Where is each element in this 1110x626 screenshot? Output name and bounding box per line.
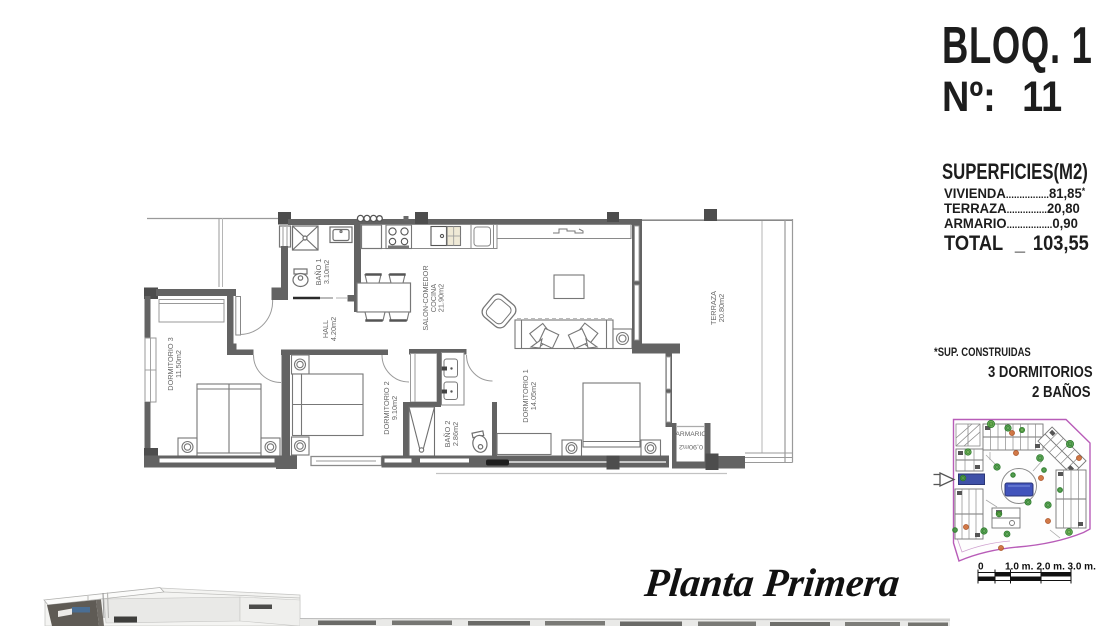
svg-text:0,90m2: 0,90m2 [679,443,703,450]
svg-text:ARMARIO: ARMARIO [676,431,707,438]
svg-text:20.80m2: 20.80m2 [717,294,726,322]
svg-text:3.0 m.: 3.0 m. [1068,562,1097,573]
svg-text:21.90m2: 21.90m2 [437,284,446,312]
svg-text:9.10m2: 9.10m2 [390,396,399,420]
svg-text:14.05m2: 14.05m2 [529,382,538,410]
svg-text:1.0 m.: 1.0 m. [1005,562,1034,573]
svg-text:3.10m2: 3.10m2 [322,260,331,284]
svg-text:11.50m2: 11.50m2 [174,350,183,378]
svg-text:4.20m2: 4.20m2 [329,317,338,341]
svg-text:0: 0 [978,562,984,573]
svg-text:2.86m2: 2.86m2 [451,422,460,446]
